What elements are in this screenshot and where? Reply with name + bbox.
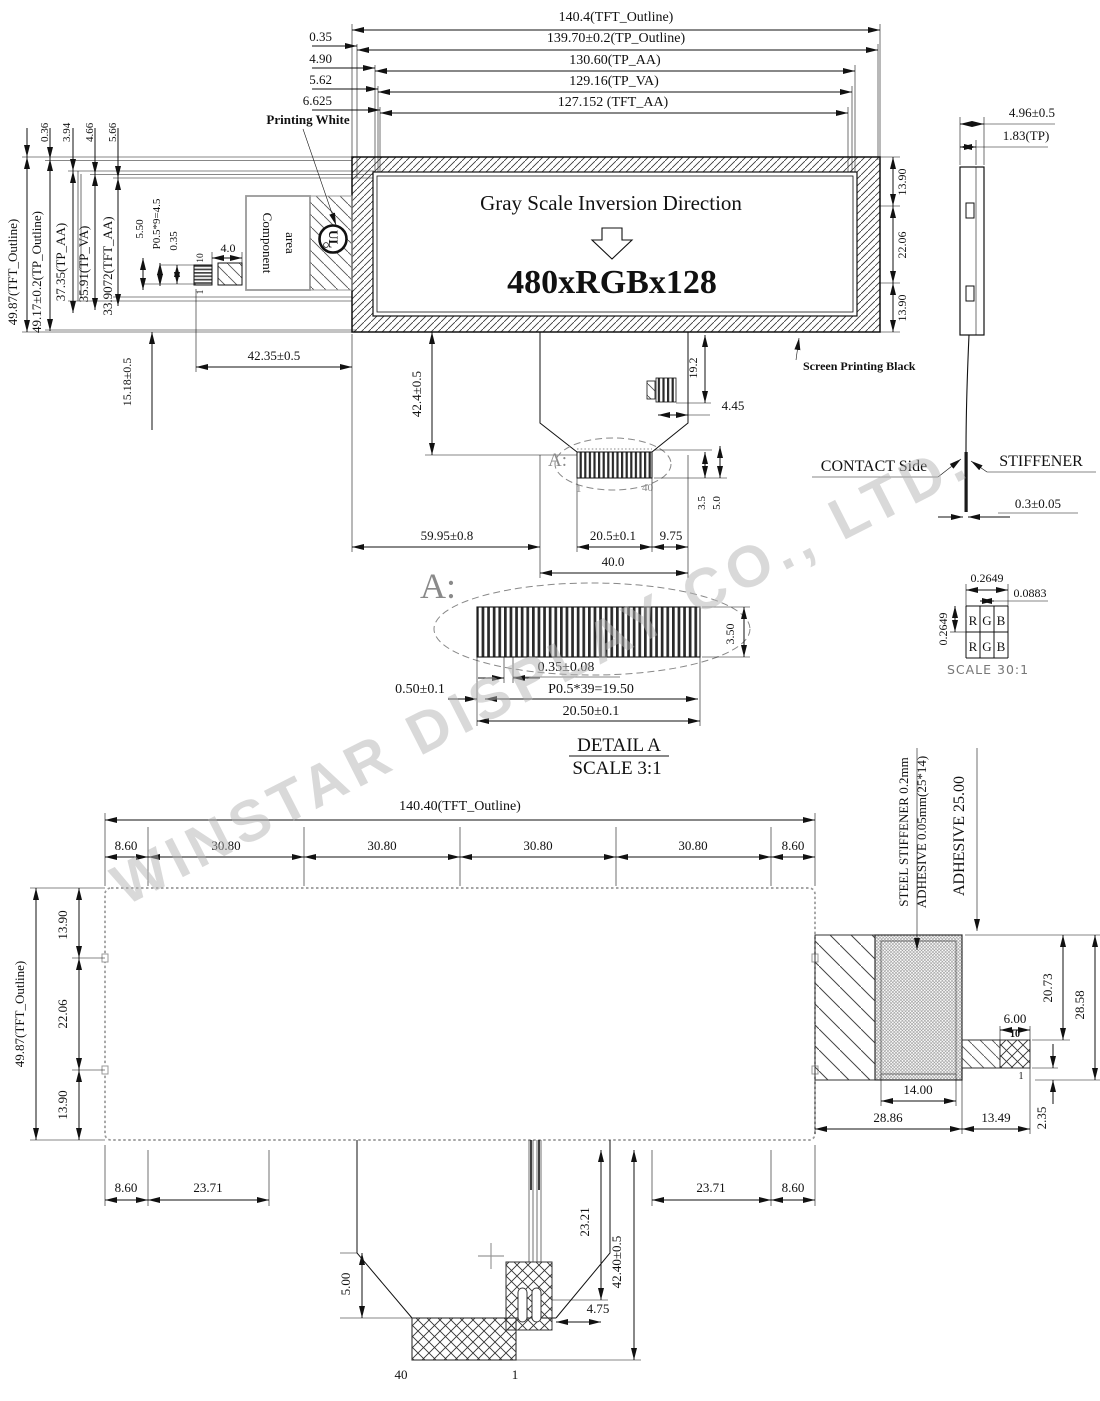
bottom-dim-r2: 23.71 (696, 1180, 725, 1195)
dim-tp-outline-width: 139.70±0.2(TP_Outline) (547, 31, 686, 46)
rear-offset-dim: 4.75 (587, 1301, 610, 1316)
right-dim-top: 13.90 (895, 169, 909, 196)
rgb-g2: G (982, 639, 991, 654)
detail-a-height-dim: 3.50 (723, 624, 737, 645)
adhesive-label: ADHESIVE 25.00 (951, 776, 968, 896)
tail-width-dim: 40.0 (602, 554, 625, 569)
rear-pin1: 1 (512, 1367, 519, 1382)
side-tp-thickness: 1.83(TP) (1003, 128, 1050, 143)
bottom-vdim-2: 22.06 (55, 999, 70, 1029)
printing-white-label: Printing White (266, 112, 349, 127)
dim-offset-036: 0.36 (39, 122, 51, 142)
fpc-connector-hatch (218, 263, 242, 285)
wire-solder-pad (506, 1262, 552, 1330)
tab-hatch (962, 1040, 1000, 1068)
connector-width-dim: 4.0 (221, 241, 236, 255)
detail-a-total-dim: 20.50±0.1 (563, 704, 620, 719)
fpc-tail-view: 42.4±0.5 A: 1 40 19.2 4.45 59.95±0.8 20.… (352, 332, 744, 578)
dim-tp-va-width: 129.16(TP_VA) (569, 74, 659, 89)
tab-total-dim: 13.49 (981, 1110, 1010, 1125)
rgb-sub-dim: 0.0883 (1014, 586, 1047, 600)
steel-stiffener-label: STEEL STIFFENER 0.2mm (896, 757, 911, 906)
dim-offset-035: 0.35 (309, 29, 332, 44)
connector-pin10-label: 10 (196, 253, 206, 263)
connector-pitch-dim: P0.5*9=4.5 (151, 198, 163, 249)
dim-offset-490: 4.90 (309, 51, 332, 66)
side-total-thickness: 4.96±0.5 (1009, 105, 1055, 120)
ext-h2-dim: 28.58 (1072, 990, 1087, 1019)
seg-dim-5: 30.80 (678, 838, 707, 853)
bottom-vdim-3: 13.90 (55, 1090, 70, 1119)
rgb-b1: B (997, 613, 1006, 628)
rgb-b2: B (997, 639, 1006, 654)
crosshair-mark (478, 1243, 504, 1269)
ext-total-width-dim: 28.86 (873, 1110, 903, 1125)
connector-pinw-dim: 0.35 (168, 231, 180, 251)
side-body (960, 167, 984, 335)
tail-contact-band (577, 452, 652, 478)
rgb-pitch-v-dim: 0.2649 (936, 613, 950, 646)
seg-dim-6: 8.60 (782, 838, 805, 853)
tail-drop-dim: 42.4±0.5 (409, 371, 424, 417)
backlight-wires (529, 1140, 541, 1262)
right-dim-bottom: 13.90 (895, 295, 909, 322)
rgb-pitch-h-dim: 0.2649 (971, 571, 1004, 585)
seg-dim-3: 30.80 (367, 838, 396, 853)
detail-a-big-marker: A: (420, 566, 456, 606)
steel-stiffener-zone (875, 935, 962, 1080)
top-height-dimensions: 0.36 3.94 4.66 5.66 49.87(TFT_Outline) 4… (5, 122, 119, 333)
fpc-drop-dim: 15.18±0.5 (120, 358, 134, 407)
adhesive-thin-label: ADHESIVE 0.05mm(25*14) (914, 756, 929, 908)
rgb-g1: G (982, 613, 991, 628)
bottom-outline (105, 888, 815, 1140)
detail-a-marker: A: (548, 450, 567, 471)
fpc-connector-pins (194, 265, 212, 285)
seg-dim-4: 30.80 (523, 838, 552, 853)
fpc-length-dim: 42.35±0.5 (248, 348, 301, 363)
bottom-dim-r1: 8.60 (782, 1180, 805, 1195)
component-height-dim: 19.2 (686, 358, 700, 379)
component-area-label-1: Component (260, 213, 275, 274)
tail-contact-dim: 20.5±0.1 (590, 528, 636, 543)
dim-tft-outline-height: 49.87(TFT_Outline) (5, 219, 20, 326)
dim-offset-6625: 6.625 (303, 93, 332, 108)
dim-tp-aa-height: 37.35(TP_AA) (53, 223, 68, 301)
dim-offset-562: 5.62 (309, 72, 332, 87)
dim-offset-566: 5.66 (107, 122, 119, 142)
stiffener-width-dim: 14.00 (903, 1082, 932, 1097)
connector-pin1-label: 1 (196, 289, 206, 294)
tail-left-dim: 59.95±0.8 (421, 528, 474, 543)
rgb-r1: R (969, 613, 978, 628)
tab-width-dim: 6.00 (1004, 1011, 1027, 1026)
dim-tp-aa-width: 130.60(TP_AA) (569, 53, 661, 68)
step-dim: 2.35 (1034, 1107, 1049, 1130)
dim-tp-outline-height: 49.17±0.2(TP_Outline) (29, 211, 44, 333)
wire-length-dim: 23.21 (577, 1207, 592, 1236)
right-dim-mid: 22.06 (895, 232, 909, 259)
detail-a-title: DETAIL A (577, 735, 661, 756)
mechanical-drawing-page: 140.4(TFT_Outline) 139.70±0.2(TP_Outline… (0, 0, 1100, 1401)
rgb-pixel-detail: 0.2649 0.0883 0.2649 R G B R G B SCALE 3… (936, 571, 1048, 677)
bottom-dim-l2: 23.71 (193, 1180, 222, 1195)
bottom-vdim-1: 13.90 (55, 910, 70, 939)
connector-offset-dim: 5.50 (134, 219, 146, 239)
display-resolution: 480xRGBx128 (507, 264, 717, 301)
dim-offset-394: 3.94 (61, 122, 73, 142)
top-view-body: Gray Scale Inversion Direction 480xRGBx1… (22, 112, 916, 430)
adhesive-hatch-zone (815, 935, 875, 1080)
rear-contact-band (412, 1318, 516, 1360)
bottom-dim-l1: 8.60 (115, 1180, 138, 1195)
tail-side-dim: 9.75 (660, 528, 683, 543)
rear-drop-dim: 42.40±0.5 (609, 1236, 624, 1289)
bottom-width-dim: 140.40(TFT_Outline) (399, 799, 521, 814)
component-width-dim: 4.45 (722, 398, 745, 413)
rear-pin40: 40 (395, 1367, 408, 1382)
ext-h1-dim: 20.73 (1040, 973, 1055, 1002)
gray-scale-direction-label: Gray Scale Inversion Direction (480, 191, 742, 215)
tail-5-dim: 5.00 (338, 1273, 353, 1296)
tab-pin10: 10 (1010, 1029, 1020, 1040)
dim-tft-aa-width: 127.152 (TFT_AA) (558, 95, 669, 110)
dim-tft-outline-width: 140.4(TFT_Outline) (559, 10, 674, 25)
detail-a-scale: SCALE 3:1 (572, 758, 661, 779)
component-area-label-2: area (283, 232, 298, 254)
component-area-box (246, 196, 310, 290)
bottom-height-dim: 49.87(TFT_Outline) (12, 961, 27, 1068)
tail-component (656, 378, 676, 402)
band-h2-dim: 5.0 (711, 496, 723, 510)
stiffener-thickness-dim: 0.3±0.05 (1015, 496, 1061, 511)
rgb-r2: R (969, 639, 978, 654)
dim-offset-466: 4.66 (84, 122, 96, 142)
band-h1-dim: 3.5 (696, 496, 708, 510)
rgb-scale-label: SCALE 30:1 (947, 662, 1029, 677)
screen-printing-black-label: Screen Printing Black (803, 359, 916, 373)
stiffener-label: STIFFENER (999, 453, 1083, 470)
engineering-drawing: 140.4(TFT_Outline) 139.70±0.2(TP_Outline… (0, 0, 1100, 1401)
top-width-dimensions: 140.4(TFT_Outline) 139.70±0.2(TP_Outline… (303, 10, 880, 178)
tab-contact (1000, 1040, 1030, 1068)
tab-pin1: 1 (1019, 1071, 1024, 1082)
